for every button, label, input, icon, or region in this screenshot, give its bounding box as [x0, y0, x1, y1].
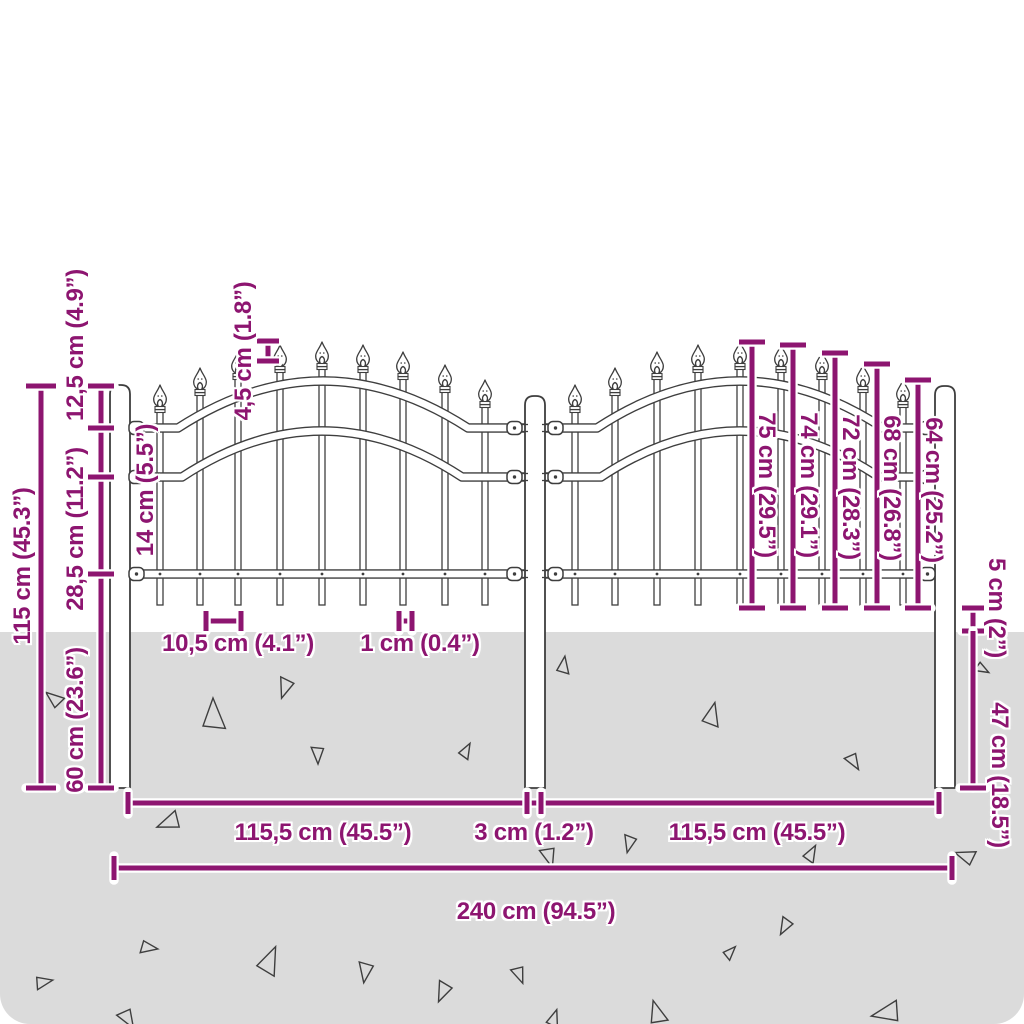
dim-label-rail-gap: 14 cm (5.5”) — [134, 424, 158, 556]
spear-finial-icon — [692, 345, 705, 366]
gravel-triangle — [117, 1008, 139, 1024]
gravel-triangle — [356, 962, 374, 984]
dim-label-lower-gap: 28,5 cm (11.2”) — [64, 447, 88, 611]
dim-label-buried-47: 47 cm (18.5”) — [987, 702, 1011, 848]
gravel-triangle — [557, 655, 572, 674]
gravel-triangle — [35, 975, 54, 990]
dim-label-picket-72: 72 cm (28.3”) — [838, 414, 862, 560]
gravel-triangle — [431, 980, 453, 1004]
gravel-triangle — [311, 747, 323, 764]
gravel-triangle — [646, 998, 668, 1024]
gravel-triangle — [621, 835, 637, 854]
fence-post — [110, 385, 130, 788]
spear-finial-icon — [569, 385, 582, 406]
spear-finial-icon — [154, 385, 167, 406]
dim-label-panel-right: 115,5 cm (45.5”) — [669, 821, 846, 845]
gravel-triangle — [869, 1000, 899, 1024]
dim-label-bottom-clearance: 5 cm (2”) — [984, 558, 1008, 658]
fence-post — [525, 396, 545, 788]
gravel-triangle — [203, 698, 225, 728]
dim-label-picket-spacing: 10,5 cm (4.1”) — [162, 632, 314, 656]
gravel-triangle — [140, 941, 159, 956]
gravel-triangle — [844, 752, 863, 773]
spear-finial-icon — [397, 352, 410, 373]
spear-finial-icon — [439, 365, 452, 386]
gravel-triangle — [458, 741, 475, 760]
picket — [439, 365, 452, 605]
dim-label-picket-74: 74 cm (29.1”) — [796, 412, 820, 558]
gravel-triangle — [274, 677, 294, 701]
gravel-triangle — [775, 917, 794, 938]
spear-finial-icon — [609, 368, 622, 389]
spear-finial-icon — [357, 345, 370, 366]
spear-finial-icon — [194, 368, 207, 389]
dim-label-panel-left: 115,5 cm (45.5”) — [235, 821, 412, 845]
dim-label-picket-64: 64 cm (25.2”) — [921, 417, 945, 563]
gravel-triangle — [702, 701, 724, 727]
dim-label-spear-height: 4,5 cm (1.8”) — [232, 282, 256, 421]
dim-label-top-offset: 12,5 cm (4.9”) — [64, 269, 88, 421]
dim-label-total-height: 115 cm (45.3”) — [11, 487, 35, 644]
spear-finial-icon — [479, 380, 492, 401]
picket — [651, 352, 664, 605]
dim-label-post-gap: 3 cm (1.2”) — [474, 821, 593, 845]
gravel-triangle — [154, 811, 181, 835]
fence-dimension-diagram: 115 cm (45.3”) 12,5 cm (4.9”) 14 cm (5.5… — [0, 0, 1024, 1024]
dim-label-buried-depth: 60 cm (23.6”) — [64, 647, 88, 793]
gravel-triangle — [723, 943, 740, 960]
dim-label-picket-75: 75 cm (29.5”) — [754, 412, 778, 558]
gravel-triangle — [256, 943, 286, 976]
dim-label-picket-width: 1 cm (0.4”) — [360, 632, 479, 656]
spear-finial-icon — [316, 342, 329, 363]
dim-label-total-width: 240 cm (94.5”) — [457, 900, 616, 924]
spear-finial-icon — [651, 352, 664, 373]
gravel-triangle — [511, 966, 528, 986]
gravel-triangle — [546, 1008, 563, 1024]
dim-label-picket-68: 68 cm (26.8”) — [879, 415, 903, 561]
